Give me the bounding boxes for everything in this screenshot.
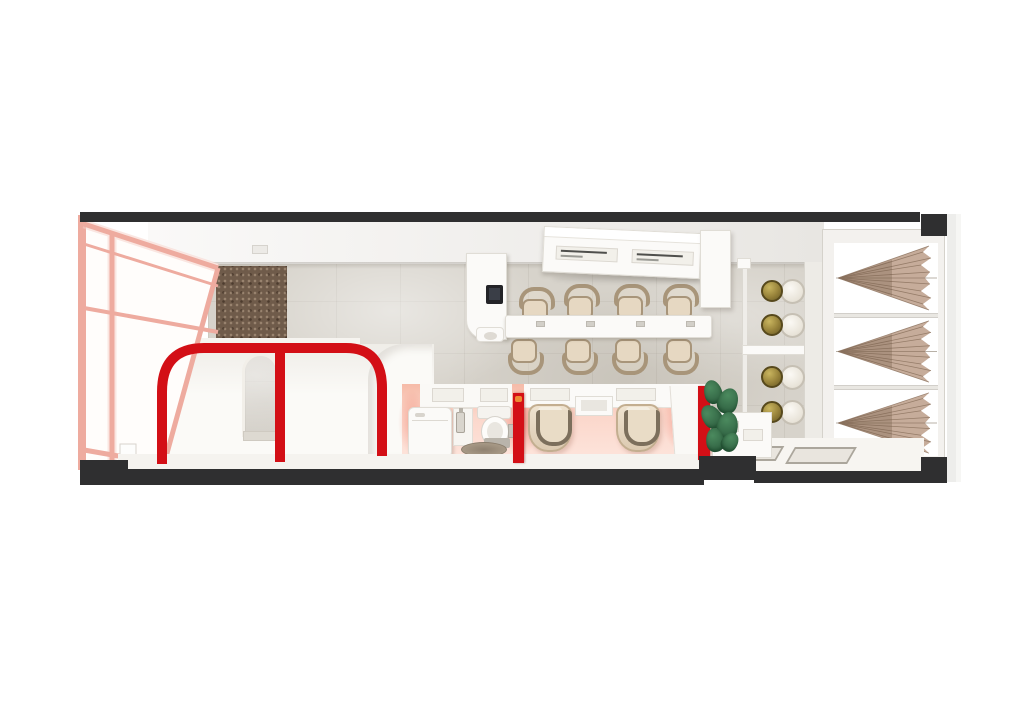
cut-wall-bottom (80, 469, 704, 485)
red-arch-outline (162, 348, 382, 464)
pedicure-seat (536, 410, 572, 446)
monstera-plant (700, 378, 746, 456)
red-wall-stub (513, 393, 524, 463)
round-seat (780, 279, 805, 304)
stub-light-dot (515, 396, 522, 402)
headrest-panel (530, 388, 570, 401)
pos-monitor-screen (489, 288, 500, 300)
sign-panel (631, 249, 694, 266)
nail-lamp (686, 321, 695, 327)
entry-counter-inset (743, 429, 763, 441)
cork-wall-panel (216, 266, 287, 344)
basin-bowl (484, 332, 497, 340)
restroom-wall-panel (480, 388, 508, 402)
soap-dispenser (456, 412, 465, 433)
rail-stub (737, 258, 751, 269)
cut-wall-corner-tr (921, 214, 947, 236)
headrest-panel (616, 388, 656, 401)
curtain (834, 243, 938, 313)
sign-panel (555, 246, 618, 263)
manicure-chair (661, 337, 697, 375)
wall-shelf (742, 345, 805, 355)
cut-wall-top (80, 212, 920, 222)
pedicure-chair (616, 404, 660, 452)
chair-seat (565, 339, 591, 363)
cut-wall-corner-br (921, 457, 947, 483)
window-bay (834, 243, 938, 313)
floor-plan-render (0, 0, 1024, 724)
red-arch-walls (150, 334, 450, 470)
soap-dispenser-cap (459, 408, 463, 413)
sign-micro-text (637, 253, 683, 257)
cut-wall-entry-sill (754, 471, 924, 483)
chair-seat (666, 339, 692, 363)
entry-mat (785, 447, 857, 464)
pedicure-seat (624, 410, 660, 446)
sign-micro-text (561, 250, 607, 254)
chair-seat (511, 339, 537, 363)
ceiling-vent (252, 245, 268, 254)
chair-seat (615, 339, 641, 363)
hanging-sign-cabinet (542, 226, 702, 279)
plan-edge-highlight (956, 214, 961, 482)
gold-stool (761, 280, 783, 302)
sign-micro-text (637, 258, 659, 261)
wall-floor-shadow (208, 262, 824, 269)
round-seat (780, 313, 805, 338)
wall-basin (476, 327, 504, 342)
round-seat (780, 400, 805, 425)
center-tray-inset (581, 400, 607, 411)
gold-stool (761, 314, 783, 336)
lounge-partition-wall (804, 262, 824, 460)
cut-wall-entry-block (699, 456, 756, 480)
round-seat (780, 365, 805, 390)
gold-stool (761, 366, 783, 388)
manicure-chair (560, 337, 596, 375)
hanging-cabinet-tower (700, 230, 731, 308)
nail-lamp (536, 321, 545, 327)
sign-micro-text (561, 255, 583, 258)
window-bay (834, 318, 938, 385)
plan-edge-shadow (947, 214, 956, 482)
window-frame-edge (78, 215, 86, 470)
nail-lamp (636, 321, 645, 327)
curtain (834, 318, 938, 385)
nail-lamp (586, 321, 595, 327)
manicure-chair (506, 337, 542, 375)
pedicure-chair (528, 404, 572, 452)
manicure-chair (610, 337, 646, 375)
